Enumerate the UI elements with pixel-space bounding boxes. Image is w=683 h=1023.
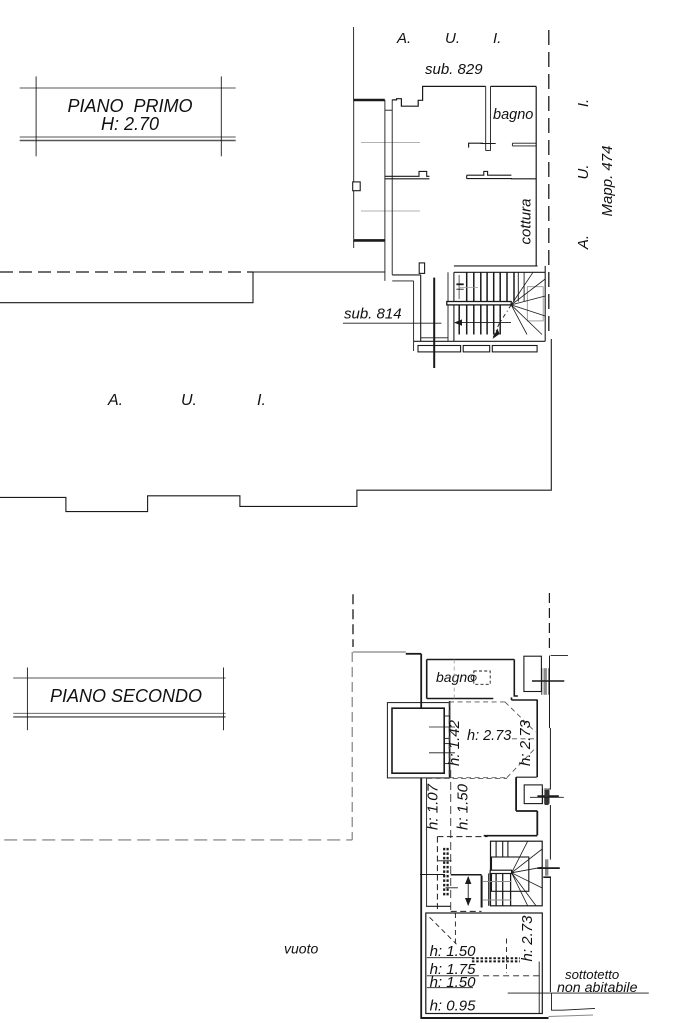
svg-text:H: 2.70: H: 2.70 [101,114,159,134]
svg-text:cottura: cottura [518,199,535,245]
svg-text:U.: U. [445,30,460,47]
svg-text:A.: A. [396,30,411,47]
svg-text:h: 1.50: h: 1.50 [430,974,477,991]
svg-text:h: 1.50: h: 1.50 [455,783,472,830]
svg-text:PIANO SECONDO: PIANO SECONDO [50,686,202,706]
svg-text:sub. 814: sub. 814 [344,306,402,323]
svg-text:h: 2.73: h: 2.73 [467,728,511,744]
svg-text:U.: U. [181,392,197,409]
svg-text:bagno: bagno [436,669,475,685]
svg-text:bagno: bagno [493,107,533,123]
svg-text:A.: A. [107,392,123,409]
svg-text:h: 0.95: h: 0.95 [430,998,477,1015]
svg-text:Mapp. 474: Mapp. 474 [599,146,616,217]
svg-text:sub. 829: sub. 829 [425,61,483,78]
svg-text:PIANO PRIMO: PIANO PRIMO [67,96,192,116]
svg-text:A.: A. [575,235,592,250]
svg-text:h: 1.42: h: 1.42 [446,719,463,766]
svg-text:h: 2.73: h: 2.73 [519,915,536,962]
svg-text:I.: I. [575,99,592,107]
svg-text:I.: I. [493,30,501,47]
svg-text:h: 2.73: h: 2.73 [517,719,534,766]
svg-text:U.: U. [575,165,592,180]
svg-text:I.: I. [257,392,266,409]
svg-text:vuoto: vuoto [284,941,318,957]
